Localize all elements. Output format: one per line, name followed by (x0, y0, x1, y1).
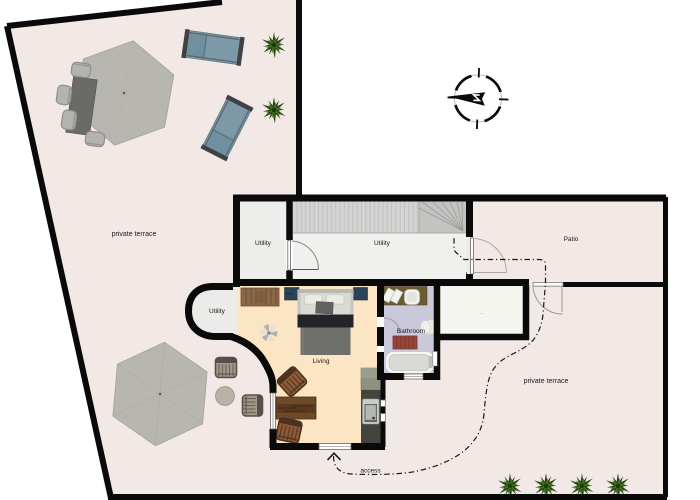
svg-text:private terrace: private terrace (112, 231, 157, 238)
svg-text:...: ... (479, 310, 482, 315)
svg-text:Firepl: Firepl (286, 292, 294, 296)
svg-text:Utility: Utility (374, 240, 391, 247)
svg-text:private terrace: private terrace (524, 378, 569, 385)
svg-text:Utility: Utility (209, 308, 226, 315)
svg-text:Utility: Utility (255, 240, 272, 247)
svg-text:access: access (360, 468, 381, 475)
svg-text:Bathroom: Bathroom (397, 328, 425, 335)
svg-text:Living: Living (313, 358, 330, 365)
svg-text:Patio: Patio (564, 236, 579, 243)
